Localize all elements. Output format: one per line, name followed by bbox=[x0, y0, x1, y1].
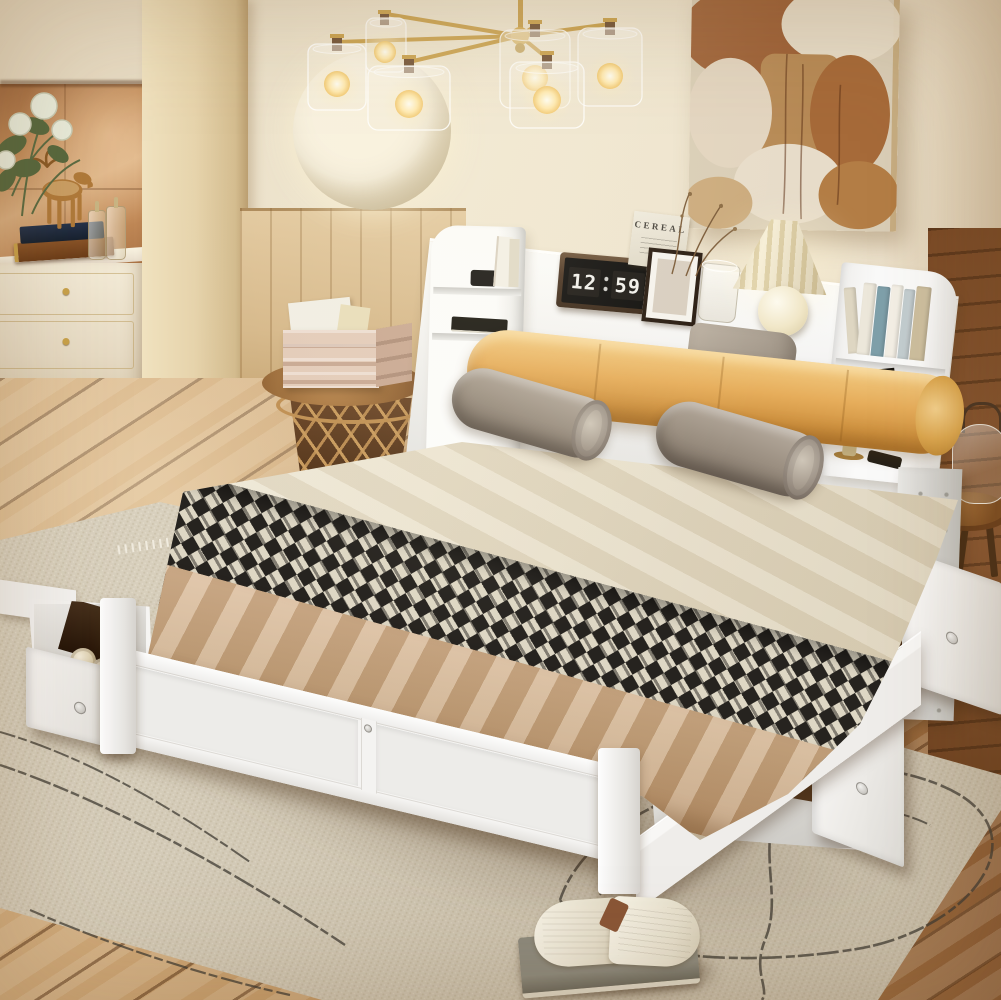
jar-lid bbox=[114, 197, 118, 208]
dresser-knob bbox=[63, 338, 70, 345]
shelf bbox=[433, 287, 521, 296]
drawer-knob bbox=[74, 700, 86, 715]
dresser-drawer bbox=[0, 321, 134, 369]
crate-side bbox=[376, 323, 412, 387]
clock-hours: 12 bbox=[567, 266, 601, 297]
drawer-knob bbox=[946, 630, 958, 646]
bedroom-photo: 12 59 CEREAL bbox=[0, 0, 1001, 1000]
shelf-book bbox=[508, 239, 519, 287]
vintage-dresser bbox=[0, 263, 144, 396]
clock-minutes: 59 bbox=[611, 270, 645, 301]
clock-colon bbox=[603, 274, 609, 292]
lamp-base bbox=[758, 286, 808, 336]
dresser-knob bbox=[63, 288, 70, 295]
drawer-knob bbox=[856, 780, 868, 797]
white-rose-arrangement bbox=[0, 76, 114, 226]
wooden-crate bbox=[283, 330, 379, 388]
bolster-seam bbox=[839, 370, 849, 442]
dresser-drawer bbox=[0, 273, 134, 315]
footboard-post-right bbox=[598, 748, 640, 894]
footboard-post-left bbox=[100, 598, 136, 754]
smartphone bbox=[867, 450, 903, 470]
page-text-lines bbox=[618, 905, 693, 959]
chandelier bbox=[262, 0, 672, 180]
